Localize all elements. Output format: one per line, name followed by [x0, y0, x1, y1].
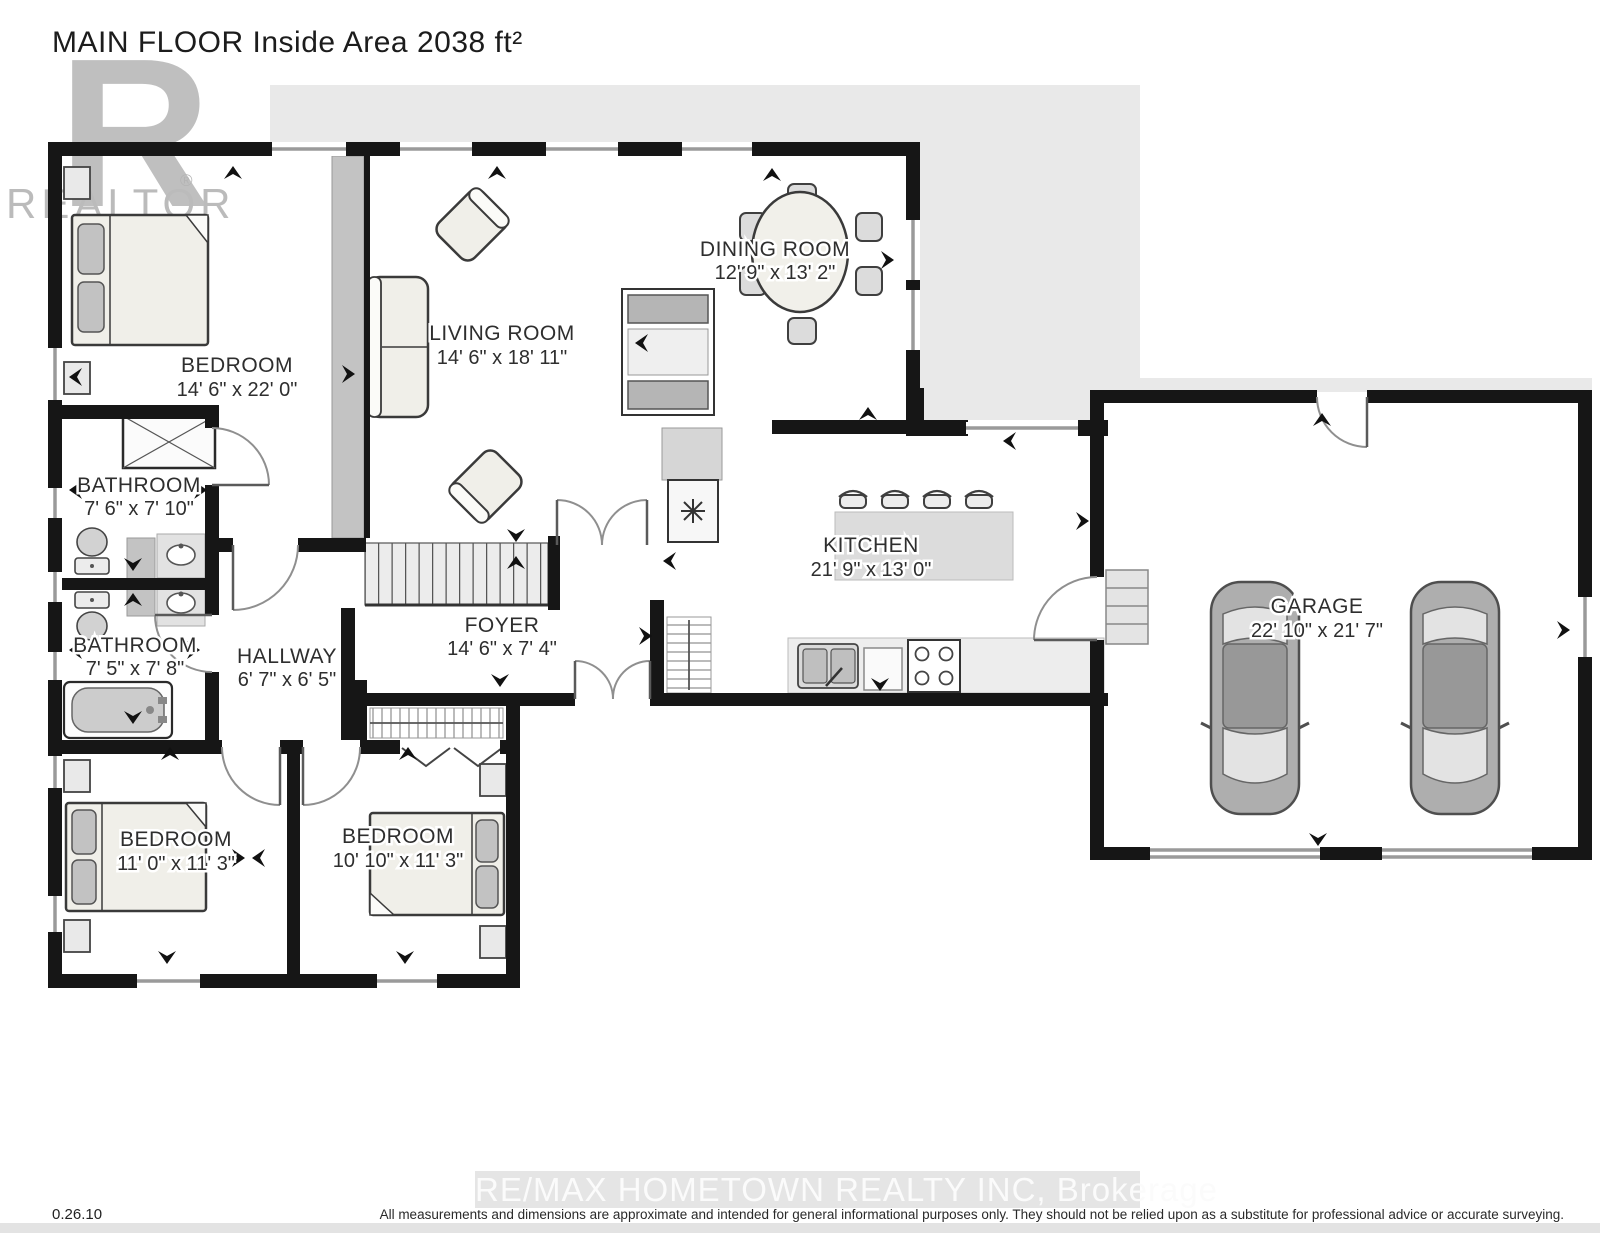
room-dims: 22' 10" x 21' 7" — [1251, 620, 1383, 642]
entry-closet — [667, 617, 711, 693]
room-name: BATHROOM — [73, 634, 197, 657]
nightstand — [64, 167, 90, 199]
room-dims: 12' 9" x 13' 2" — [715, 262, 836, 284]
shower — [123, 416, 215, 468]
room-dims: 11' 0" x 11' 3" — [117, 853, 235, 875]
room-name: BEDROOM — [181, 354, 293, 377]
room-name: LIVING ROOM — [429, 322, 575, 345]
page-title: MAIN FLOOR Inside Area 2038 ft² — [52, 26, 523, 60]
bathtub — [64, 682, 172, 738]
version-stamp: 0.26.10 — [52, 1206, 102, 1223]
floor-plan-drawing: R REALTOR ® — [0, 0, 1600, 1233]
nightstand — [480, 926, 506, 958]
room-dims: 7' 5" x 7' 8" — [86, 658, 185, 680]
room-dims: 10' 10" x 11' 3" — [333, 850, 463, 872]
sideboard — [622, 289, 714, 415]
half-wall — [332, 156, 364, 538]
nightstand — [480, 764, 506, 796]
room-dims: 7' 6" x 7' 10" — [84, 498, 194, 520]
half-wall — [364, 156, 370, 538]
bottom-strip — [0, 1223, 1600, 1233]
room-name: BEDROOM — [342, 825, 454, 848]
room-name: BATHROOM — [77, 474, 201, 497]
room-name: DINING ROOM — [700, 238, 850, 261]
half-wall — [127, 538, 155, 616]
car — [1401, 582, 1509, 814]
kitchen-counter — [788, 638, 1104, 693]
toilet — [75, 528, 109, 574]
room-dims: 14' 6" x 22' 0" — [177, 379, 298, 401]
floorplan-page: R REALTOR ® — [0, 0, 1600, 1233]
nightstand — [64, 920, 90, 952]
room-dims: 21' 9" x 13' 0" — [811, 559, 932, 581]
room-name: FOYER — [465, 614, 540, 637]
fridge — [662, 428, 722, 542]
room-dims: 14' 6" x 7' 4" — [447, 638, 557, 660]
master-bed — [72, 215, 208, 345]
nightstand — [64, 760, 90, 792]
room-name: GARAGE — [1271, 595, 1364, 618]
sofa — [368, 277, 428, 417]
stove — [908, 640, 960, 692]
garage-steps — [1106, 570, 1148, 644]
room-name: BEDROOM — [120, 828, 232, 851]
registered-mark-icon: ® — [180, 171, 193, 190]
room-dims: 14' 6" x 18' 11" — [437, 347, 567, 369]
brokerage-watermark: RE/MAX HOMETOWN REALTY INC, Brokerage — [475, 1171, 1140, 1208]
room-dims: 6' 7" x 6' 5" — [238, 669, 337, 691]
disclaimer-text: All measurements and dimensions are appr… — [380, 1207, 1564, 1222]
stairs — [365, 543, 548, 605]
sink-vanity — [157, 534, 205, 578]
room-name: HALLWAY — [237, 645, 337, 668]
room-name: KITCHEN — [823, 534, 919, 557]
